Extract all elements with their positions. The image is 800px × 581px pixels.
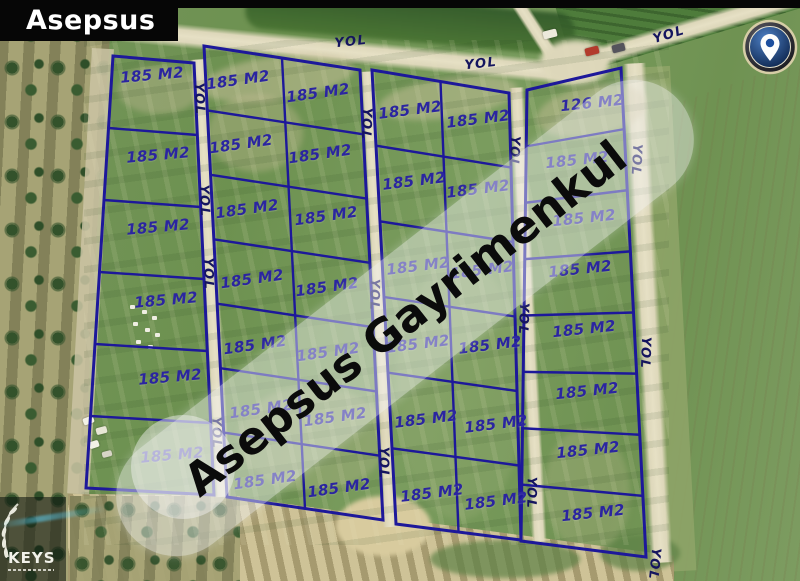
land-plot-map: 185 M2185 M2185 M2185 M2185 M2185 M2185 …: [0, 0, 800, 581]
keys-logo-text: KEYS: [8, 549, 56, 567]
road-label: YOL: [645, 547, 663, 581]
road-label: YOL: [358, 107, 374, 140]
road-label: YOL: [334, 33, 368, 51]
road-label: YOL: [376, 447, 391, 480]
title-badge: Asepsus: [0, 0, 178, 41]
road-label: YOL: [651, 23, 687, 47]
road-label: YOL: [200, 257, 216, 290]
keys-logo: KEYS: [0, 497, 66, 581]
road-label: YOL: [196, 184, 212, 217]
road-label: YOL: [464, 55, 498, 73]
location-pin-icon: [742, 19, 798, 75]
road-label: YOL: [523, 476, 539, 509]
keys-logo-subtext-dashes: [8, 569, 54, 571]
road-label: YOL: [637, 336, 653, 369]
pin-dot: [766, 39, 774, 47]
title-text: Asepsus: [26, 5, 155, 36]
road-label: YOL: [191, 82, 207, 115]
road-label: YOL: [515, 302, 531, 335]
